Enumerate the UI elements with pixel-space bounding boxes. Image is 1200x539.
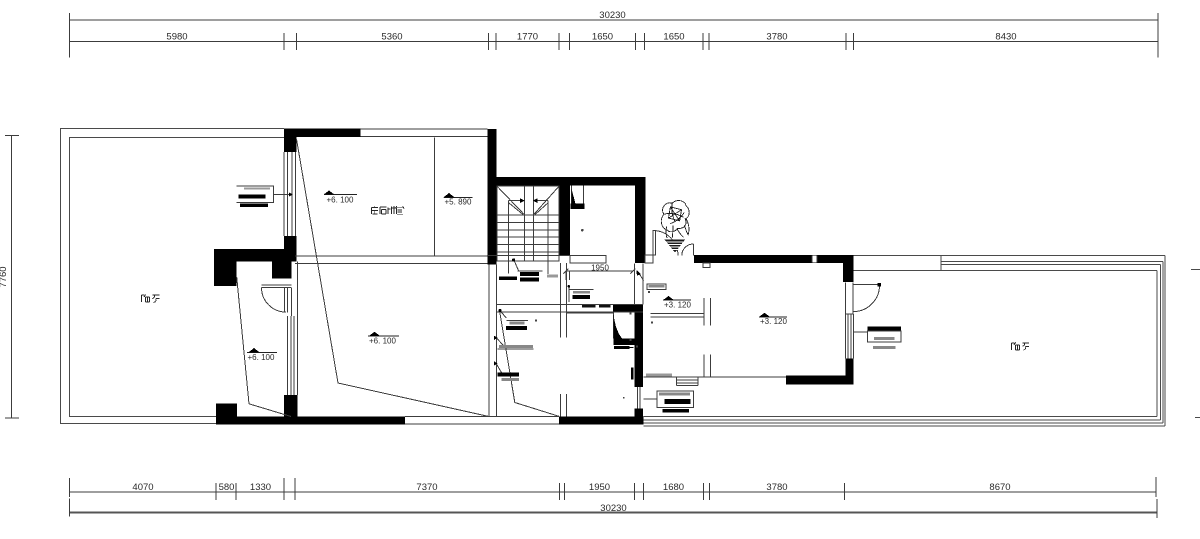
svg-text:+3. 120: +3. 120 <box>664 300 691 309</box>
svg-text:8430: 8430 <box>995 32 1016 43</box>
svg-text:+6. 100: +6. 100 <box>369 337 396 346</box>
svg-text:30230: 30230 <box>599 10 625 21</box>
svg-text:+6. 100: +6. 100 <box>248 353 275 362</box>
svg-text:7370: 7370 <box>416 482 437 493</box>
svg-text:4070: 4070 <box>132 482 153 493</box>
svg-text:5360: 5360 <box>381 32 402 43</box>
svg-text:+3. 120: +3. 120 <box>760 317 787 326</box>
svg-text:1650: 1650 <box>663 32 684 43</box>
svg-text:1650: 1650 <box>592 32 613 43</box>
svg-text:8670: 8670 <box>989 482 1010 493</box>
svg-text:3780: 3780 <box>766 32 787 43</box>
svg-text:5980: 5980 <box>166 32 187 43</box>
svg-text:+6. 100: +6. 100 <box>327 195 354 204</box>
svg-text:1330: 1330 <box>250 482 271 493</box>
svg-text:1770: 1770 <box>517 32 538 43</box>
svg-text:7760: 7760 <box>0 266 9 287</box>
svg-text:1950: 1950 <box>589 482 610 493</box>
svg-text:1680: 1680 <box>663 482 684 493</box>
svg-text:580: 580 <box>219 482 235 493</box>
svg-text:+5. 890: +5. 890 <box>445 198 472 207</box>
svg-text:3780: 3780 <box>766 482 787 493</box>
svg-text:30230: 30230 <box>600 503 626 514</box>
